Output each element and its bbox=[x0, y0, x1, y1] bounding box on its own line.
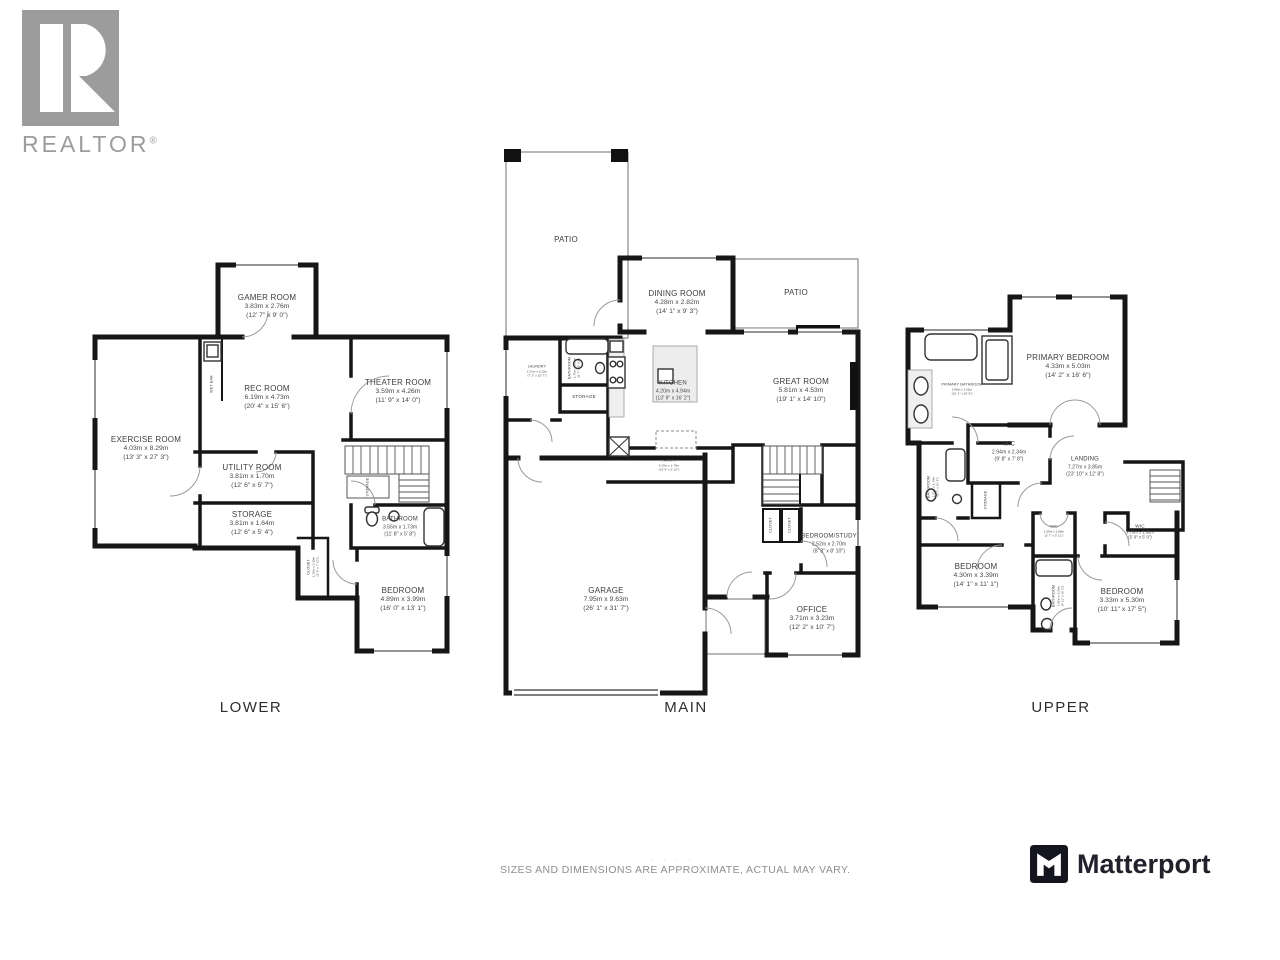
room-label-office: OFFICE 3.71m x 3.23m (12' 2" x 10' 7") bbox=[789, 605, 835, 633]
floor-label-upper: UPPER bbox=[1031, 699, 1090, 716]
room-label-bathroom: BATHROOM 3.55m x 1.73m (11' 8" x 5' 8") bbox=[382, 516, 418, 537]
room-label-closet-b: CLOSET bbox=[788, 517, 793, 533]
room-label-bathroom-left: BATHROOM 1.52m x 3.14m (5' 0" x 10' 4") bbox=[927, 476, 940, 498]
bathtub-icon bbox=[1036, 560, 1072, 576]
floorplan-main: PATIO DINING ROOM 4.28m x 2.82m (14' 1" … bbox=[495, 140, 870, 715]
garage-door bbox=[512, 687, 660, 699]
room-label-wic: WIC 2.94m x 2.34m (9' 8" x 7' 8") bbox=[992, 441, 1026, 462]
room-label-patio-right: PATIO bbox=[784, 288, 808, 298]
room-label-bedroom-right: BEDROOM 3.33m x 5.30m (10' 11" x 17' 5") bbox=[1098, 587, 1147, 615]
room-label-upper-storage: STORAGE bbox=[984, 491, 989, 510]
room-label-laundry: LAUNDRY 2.21m x 3.23m (7' 3" x 10' 7") bbox=[527, 365, 547, 378]
room-label-garage: GARAGE 7.95m x 9.63m (26' 1" x 31' 7") bbox=[583, 586, 629, 614]
room-label-wic-small: WIC 1.09m x 1.80m (3' 7" x 5' 11") bbox=[1044, 525, 1064, 538]
room-label-primary-bathroom: PRIMARY BATHROOM 3.08m x 3.20m (10' 1" x… bbox=[942, 383, 983, 396]
room-label-main-bathroom: BATHROOM 1.70m x 3.00m (5' 7" x 9' 10") bbox=[568, 357, 581, 379]
patio-post-icon bbox=[611, 149, 628, 162]
room-label-theater: THEATER ROOM 3.59m x 4.26m (11' 9" x 14'… bbox=[365, 378, 431, 406]
matterport-logo: Matterport bbox=[1030, 845, 1211, 883]
room-label-patio-left: PATIO bbox=[554, 235, 578, 245]
room-label-primary-bedroom: PRIMARY BEDROOM 4.33m x 5.03m (14' 2" x … bbox=[1027, 353, 1110, 381]
realtor-r-icon bbox=[22, 10, 119, 126]
room-label-great: GREAT ROOM 5.81m x 4.53m (19' 1" x 14' 1… bbox=[773, 377, 829, 405]
room-label-bedroom-left: BEDROOM 4.30m x 3.39m (14' 1" x 11' 1") bbox=[953, 562, 998, 590]
room-label-rec: REC ROOM 6.19m x 4.73m (20' 4" x 15' 6") bbox=[244, 384, 290, 412]
bathtub-icon bbox=[566, 339, 608, 354]
toilet-icon bbox=[596, 363, 605, 374]
registered-mark: ® bbox=[150, 135, 157, 146]
disclaimer-text: SIZES AND DIMENSIONS ARE APPROXIMATE, AC… bbox=[500, 864, 850, 876]
room-label-closet: CLOSET 1.15m x 2.39m (3' 9" x 7' 10") bbox=[307, 557, 320, 577]
room-label-exercise: EXERCISE ROOM 4.03m x 8.29m (13' 3" x 27… bbox=[111, 435, 181, 463]
matterport-wordmark: Matterport bbox=[1077, 849, 1211, 880]
room-label-wet-bar: WET BAR bbox=[210, 375, 215, 393]
kitchen-sink-icon bbox=[610, 341, 623, 352]
main-stairs bbox=[763, 446, 822, 504]
entry-porch bbox=[706, 599, 765, 654]
bathtub-icon bbox=[925, 334, 977, 360]
room-label-pantry: PANTRY 4.20m x 1.79m (13' 9" x 5' 10") bbox=[659, 459, 680, 472]
room-label-main-storage: STORAGE bbox=[572, 394, 596, 400]
room-label-wic-right: WIC 1.75m x 1.53m (5' 9" x 5' 0") bbox=[1126, 524, 1154, 541]
realtor-wordmark: REALTOR® bbox=[22, 131, 182, 158]
room-label-kitchen: KITCHEN 4.20m x 4.94m (13' 9" x 16' 2") bbox=[656, 380, 691, 401]
room-label-bedroom: BEDROOM 4.89m x 3.99m (16' 0" x 13' 1") bbox=[380, 586, 426, 614]
room-label-utility: UTILITY ROOM 3.81m x 1.70m (12' 6" x 5' … bbox=[222, 463, 281, 491]
bathtub-icon bbox=[424, 508, 444, 546]
room-label-storage: STORAGE 3.81m x 1.64m (12' 6" x 5' 4") bbox=[230, 510, 275, 538]
room-label-dining: DINING ROOM 4.28m x 2.82m (14' 1" x 9' 3… bbox=[648, 289, 705, 317]
sink-icon bbox=[914, 377, 928, 395]
bathtub-icon bbox=[946, 449, 965, 481]
room-label-landing: LANDING 7.27m x 3.85m (23' 10" x 12' 8") bbox=[1066, 456, 1104, 477]
upper-floorplan-drawing bbox=[900, 285, 1215, 685]
wet-bar-sink-icon bbox=[207, 345, 218, 357]
floorplan-lower: GAMER ROOM 3.83m x 2.76m (12' 7" x 9' 0"… bbox=[88, 255, 460, 660]
sink-icon bbox=[953, 495, 962, 504]
lower-stairs bbox=[345, 446, 429, 502]
room-label-bedroom-study: BEDROOM/STUDY 2.52m x 2.70m (8' 3" x 8' … bbox=[801, 533, 857, 554]
floor-label-lower: LOWER bbox=[220, 699, 283, 716]
patio-post-icon bbox=[504, 149, 521, 162]
floor-label-main: MAIN bbox=[664, 699, 708, 716]
fireplace-icon bbox=[850, 362, 858, 410]
sink-icon bbox=[914, 405, 928, 423]
room-label-bathroom-mid: BATHROOM 1.50m x 3.05m (4' 11" x 10' 0") bbox=[1052, 585, 1065, 607]
room-label-stair-storage: STORAGE bbox=[366, 478, 371, 497]
realtor-logo: REALTOR® bbox=[22, 10, 182, 158]
pantry-shelf bbox=[656, 431, 696, 448]
room-label-gamer: GAMER ROOM 3.83m x 2.76m (12' 7" x 9' 0"… bbox=[238, 293, 296, 321]
upper-stairs bbox=[1150, 470, 1180, 502]
floorplan-page: REALTOR® bbox=[0, 0, 1280, 960]
faint-marks: · · · · bbox=[650, 855, 695, 864]
toilet-icon bbox=[367, 512, 378, 526]
matterport-icon bbox=[1030, 845, 1068, 883]
room-label-closet-a: CLOSET bbox=[769, 517, 774, 533]
toilet-icon bbox=[1041, 598, 1051, 610]
floorplan-upper: PRIMARY BEDROOM 4.33m x 5.03m (14' 2" x … bbox=[900, 285, 1215, 685]
